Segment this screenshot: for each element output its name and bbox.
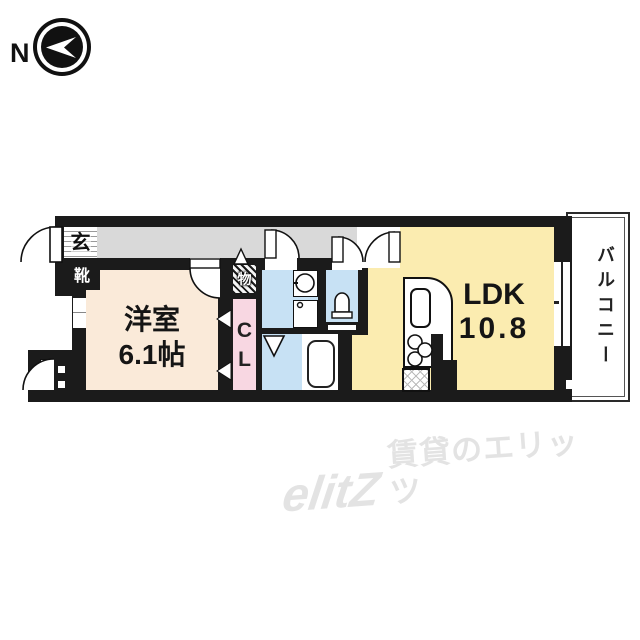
western-room-name: 洋室	[86, 302, 218, 337]
west-window	[73, 298, 86, 328]
washroom-door-gap	[265, 258, 297, 270]
ldk-doorway	[357, 227, 400, 268]
watermark-logo: elitZ	[280, 464, 383, 518]
entrance-door-swing	[21, 227, 56, 262]
bathtub-icon	[307, 340, 335, 388]
exterior-cutout	[55, 296, 72, 350]
genkan-label: 玄	[71, 233, 91, 253]
pipe-space-door-slot	[40, 359, 54, 390]
ldk-room-nook	[352, 335, 368, 390]
toilet-room	[326, 270, 358, 322]
ldk-name: LDK	[428, 278, 560, 312]
storage-label: 物	[238, 269, 252, 289]
ldk-label: LDK 10.8	[428, 278, 560, 346]
closet-label-c: C	[237, 320, 252, 341]
entrance-genkan: 玄	[64, 227, 97, 258]
western-room-size: 6.1帖	[86, 337, 218, 372]
pipe-space-dot	[58, 366, 65, 373]
kitchen-wall-stub-2	[443, 360, 457, 392]
watermark: elitZ 賃貸のエリッツ	[280, 428, 584, 519]
balcony: バルコニー	[566, 212, 630, 402]
washing-machine-space	[293, 300, 318, 328]
balcony-window-divider	[561, 262, 563, 346]
balcony-corner-notch	[566, 380, 575, 389]
refrigerator-space	[402, 368, 430, 392]
north-label: N	[10, 38, 30, 69]
compass-icon	[33, 18, 91, 76]
bathtub-zone	[302, 334, 338, 390]
shoe-cabinet-label: 靴	[74, 262, 90, 286]
western-room-door-gap	[190, 258, 220, 270]
watermark-text: 賃貸のエリッツ	[386, 423, 584, 511]
western-room-label: 洋室 6.1帖	[86, 302, 218, 372]
closet: C L	[233, 299, 256, 390]
west-window-divider	[73, 312, 86, 313]
floorplan-page: { "compass": { "north_label": "N" }, "pl…	[0, 0, 640, 640]
shoe-cabinet: 靴	[64, 258, 100, 290]
ldk-room-upper	[400, 227, 554, 268]
hallway	[97, 227, 357, 258]
bathroom	[262, 334, 302, 390]
ldk-size: 10.8	[428, 312, 560, 346]
pipe-space-dot	[58, 381, 65, 388]
closet-label-l: L	[238, 349, 251, 370]
storage-box: 物	[233, 265, 256, 293]
entrance-door-arc	[21, 227, 56, 262]
vanity-sink	[293, 270, 318, 297]
toilet-window	[328, 325, 356, 330]
toilet-door-gap	[332, 258, 362, 270]
balcony-inner-line	[571, 217, 625, 397]
